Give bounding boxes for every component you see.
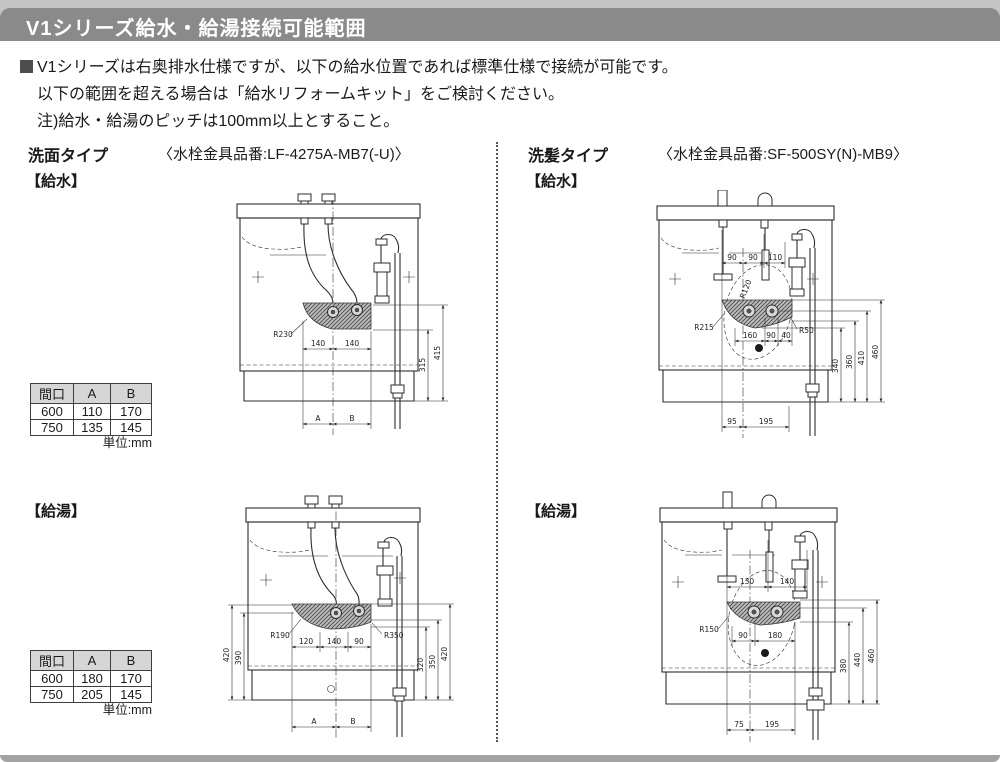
dim-label-h3: 460 — [867, 649, 876, 664]
table-cell: 600 — [31, 404, 74, 420]
dim-label-right-outer: 420 — [440, 647, 449, 662]
dim-label-top1: 90 — [727, 253, 737, 262]
shampoo-supply-label: 【給水】 — [526, 170, 586, 191]
dim-label-b: B — [349, 414, 354, 423]
page-bottom-edge — [0, 755, 1000, 762]
dim-label-left-inner: 390 — [234, 651, 243, 666]
dim-label-w1: 120 — [299, 637, 314, 646]
dim-label-w1: 160 — [743, 331, 758, 340]
supply-zone-hatch — [722, 300, 792, 328]
unit-label: 単位:mm — [30, 432, 152, 451]
table-cell: 170 — [111, 404, 152, 420]
washbasin-supply-table: 間口 A B 600 110 170 750 135 145 — [30, 383, 152, 436]
dim-label-h4: 460 — [871, 345, 880, 360]
col-header-b: B — [111, 384, 152, 404]
catalog-page: V1シリーズ給水・給湯接続可能範囲 V1シリーズは右奥排水仕様ですが、以下の給水… — [0, 0, 1000, 762]
shampoo-hot-diagram: 130 140 R150 90 180 380 440 460 — [622, 490, 947, 761]
table-cell: 110 — [74, 404, 111, 420]
dim-label-h2: 360 — [845, 355, 854, 370]
column-separator — [496, 142, 498, 742]
table-header-row: 間口 A B — [31, 384, 152, 404]
col-header-a: A — [74, 651, 111, 671]
shampoo-part-number: 〈水栓金具品番:SF-500SY(N)-MB9〉 — [658, 143, 908, 164]
dim-label-h3: 410 — [857, 351, 866, 366]
dim-label-a: A — [311, 717, 317, 726]
drain-trap — [792, 532, 824, 741]
table-header-row: 間口 A B — [31, 651, 152, 671]
intro-line-1: V1シリーズは右奥排水仕様ですが、以下の給水位置であれば標準仕様で接続が可能です… — [20, 54, 678, 81]
washbasin-supply-diagram: R230 140 140 315 415 A B — [190, 193, 485, 446]
shampoo-type-label: 洗髪タイプ — [528, 142, 608, 166]
intro-line-3: 注)給水・給湯のピッチは100mm以上とすること。 — [37, 108, 678, 135]
washbasin-type-label: 洗面タイプ — [28, 142, 108, 166]
dim-label-height-outer: 415 — [433, 346, 442, 361]
col-header-maguchi: 間口 — [31, 651, 74, 671]
dim-label-w2: 180 — [768, 631, 783, 640]
dim-label-top2: 90 — [748, 253, 758, 262]
dim-label-h1: 380 — [839, 659, 848, 674]
col-header-a: A — [74, 384, 111, 404]
dim-label-b1: 95 — [727, 417, 737, 426]
intro-line-1-text: V1シリーズは右奥排水仕様ですが、以下の給水位置であれば標準仕様で接続が可能です… — [37, 59, 678, 76]
dim-label-b: B — [350, 717, 355, 726]
dim-label-w3: 90 — [354, 637, 364, 646]
supply-zone-hatch — [727, 602, 800, 625]
faucet-fixtures — [305, 496, 359, 609]
shampoo-hot-label: 【給湯】 — [526, 500, 586, 521]
dim-label-right-mid: 350 — [428, 655, 437, 670]
washbasin-supply-label: 【給水】 — [26, 170, 86, 191]
drain-trap — [374, 235, 404, 430]
dim-label-w1: 90 — [738, 631, 748, 640]
washbasin-hot-label: 【給湯】 — [26, 500, 86, 521]
dim-label-b2: 195 — [759, 417, 774, 426]
washbasin-hot-table: 間口 A B 600 180 170 750 205 145 — [30, 650, 152, 703]
dim-label-height-inner: 315 — [418, 358, 427, 373]
dim-label-radius-left: R190 — [270, 631, 290, 640]
faucet-fixtures — [298, 194, 357, 307]
table-cell: 180 — [74, 671, 111, 687]
dim-label-radius-right: R350 — [384, 631, 404, 640]
supply-zone-hatch — [292, 604, 371, 629]
dim-label-h2: 440 — [853, 653, 862, 668]
supply-zone-hatch — [303, 303, 371, 329]
dim-label-radius-left: R215 — [694, 323, 714, 332]
col-header-maguchi: 間口 — [31, 384, 74, 404]
shower-faucet-fixtures — [714, 190, 802, 367]
dim-label-radius-left: R150 — [699, 625, 719, 634]
table-cell: 170 — [111, 671, 152, 687]
page-title: V1シリーズ給水・給湯接続可能範囲 — [26, 12, 366, 41]
dim-label-top3: 110 — [768, 253, 783, 262]
dim-label-w3: 40 — [781, 331, 791, 340]
dim-label-top2: 140 — [780, 577, 795, 586]
dim-label-pitch-right: 140 — [345, 339, 360, 348]
dim-label-top1: 130 — [740, 577, 755, 586]
intro-line-2: 以下の範囲を超える場合は「給水リフォームキット」をご検討ください。 — [37, 81, 678, 108]
dim-label-radius-right: R50 — [799, 326, 814, 335]
dim-label-a: A — [315, 414, 321, 423]
table-row: 600 110 170 — [31, 404, 152, 420]
intro-block: V1シリーズは右奥排水仕様ですが、以下の給水位置であれば標準仕様で接続が可能です… — [20, 54, 678, 135]
dim-label-pitch-left: 140 — [311, 339, 326, 348]
dim-label-radius: R230 — [273, 330, 293, 339]
washbasin-part-number: 〈水栓金具品番:LF-4275A-MB7(-U)〉 — [158, 143, 410, 164]
shampoo-supply-diagram: 90 90 110 R120 R215 R50 160 90 40 — [622, 190, 947, 457]
dim-label-b1: 75 — [734, 720, 744, 729]
dim-label-w2: 140 — [327, 637, 342, 646]
dim-label-h1: 340 — [831, 359, 840, 374]
page-title-bar: V1シリーズ給水・給湯接続可能範囲 — [0, 8, 1000, 41]
dim-label-w2: 90 — [766, 331, 776, 340]
washbasin-hot-diagram: R190 R350 120 140 90 420 390 — [188, 492, 485, 753]
table-cell: 600 — [31, 671, 74, 687]
table-row: 600 180 170 — [31, 671, 152, 687]
dim-label-right-inner: 320 — [416, 658, 425, 673]
bullet-square-icon — [20, 60, 33, 73]
dim-label-left-outer: 420 — [222, 648, 231, 663]
dim-label-b2: 195 — [765, 720, 780, 729]
unit-label: 単位:mm — [30, 699, 152, 718]
col-header-b: B — [111, 651, 152, 671]
dim-label-hose-radius: R120 — [738, 278, 754, 300]
